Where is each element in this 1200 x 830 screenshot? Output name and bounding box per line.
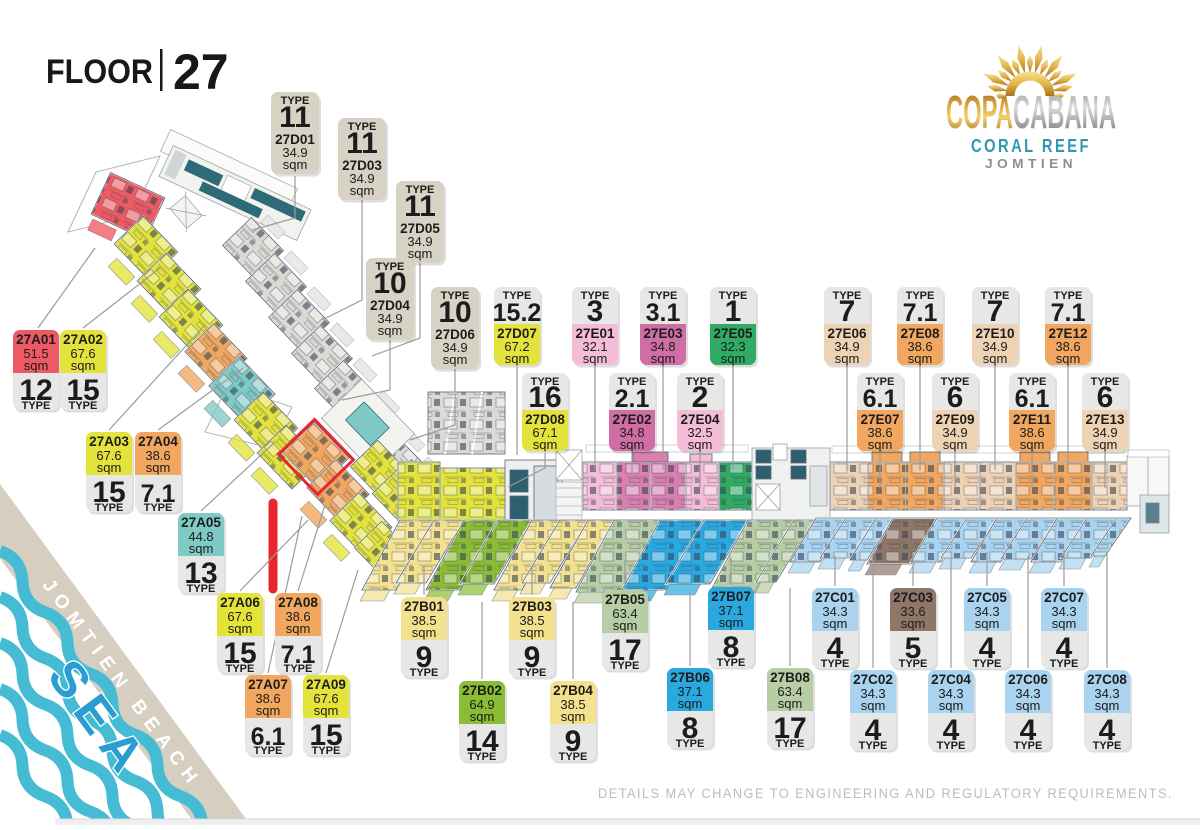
svg-text:sqm: sqm bbox=[146, 460, 171, 475]
svg-text:DETAILS MAY CHANGE TO ENGINEER: DETAILS MAY CHANGE TO ENGINEERING AND RE… bbox=[598, 786, 1173, 801]
svg-text:sqm: sqm bbox=[189, 541, 214, 556]
svg-text:JOMTIEN: JOMTIEN bbox=[985, 157, 1077, 171]
svg-text:TYPE: TYPE bbox=[22, 400, 51, 412]
svg-text:sqm: sqm bbox=[688, 437, 713, 452]
svg-text:3: 3 bbox=[587, 295, 604, 328]
svg-text:sqm: sqm bbox=[1016, 698, 1041, 713]
svg-text:CORAL REEF: CORAL REEF bbox=[971, 136, 1091, 156]
svg-text:27C04: 27C04 bbox=[931, 672, 971, 687]
svg-text:sqm: sqm bbox=[943, 437, 968, 452]
svg-text:1: 1 bbox=[725, 295, 742, 328]
svg-text:27B03: 27B03 bbox=[512, 599, 552, 614]
svg-text:sqm: sqm bbox=[613, 618, 638, 633]
svg-text:sqm: sqm bbox=[983, 351, 1008, 366]
svg-text:TYPE: TYPE bbox=[937, 740, 966, 752]
svg-text:27A05: 27A05 bbox=[181, 515, 221, 530]
svg-text:sqm: sqm bbox=[678, 696, 703, 711]
svg-text:15.2: 15.2 bbox=[493, 299, 542, 327]
svg-text:sqm: sqm bbox=[314, 703, 339, 718]
svg-text:11: 11 bbox=[279, 101, 311, 134]
svg-text:sqm: sqm bbox=[1095, 698, 1120, 713]
svg-text:sqm: sqm bbox=[975, 616, 1000, 631]
svg-text:27C03: 27C03 bbox=[893, 590, 933, 605]
svg-text:TYPE: TYPE bbox=[1093, 740, 1122, 752]
svg-text:TYPE: TYPE bbox=[611, 660, 640, 672]
svg-text:sqm: sqm bbox=[283, 157, 308, 172]
svg-text:sqm: sqm bbox=[350, 183, 375, 198]
svg-text:6: 6 bbox=[947, 381, 964, 414]
svg-text:sqm: sqm bbox=[861, 698, 886, 713]
svg-text:6.1: 6.1 bbox=[1015, 385, 1050, 413]
svg-text:10: 10 bbox=[373, 267, 406, 300]
svg-text:TYPE: TYPE bbox=[226, 663, 255, 675]
svg-text:COPACABANA: COPACABANA bbox=[946, 86, 1116, 138]
svg-text:TYPE: TYPE bbox=[518, 667, 547, 679]
svg-text:sqm: sqm bbox=[228, 621, 253, 636]
svg-text:TYPE: TYPE bbox=[776, 738, 805, 750]
svg-text:sqm: sqm bbox=[286, 621, 311, 636]
svg-text:TYPE: TYPE bbox=[254, 745, 283, 757]
svg-text:TYPE: TYPE bbox=[1050, 658, 1079, 670]
svg-text:sqm: sqm bbox=[1093, 437, 1118, 452]
svg-text:TYPE: TYPE bbox=[859, 740, 888, 752]
svg-text:2: 2 bbox=[692, 381, 709, 414]
svg-text:27B04: 27B04 bbox=[553, 683, 593, 698]
svg-text:sqm: sqm bbox=[561, 709, 586, 724]
svg-text:27A09: 27A09 bbox=[306, 677, 346, 692]
svg-text:TYPE: TYPE bbox=[144, 502, 173, 514]
svg-text:TYPE: TYPE bbox=[69, 400, 98, 412]
svg-text:sqm: sqm bbox=[412, 625, 437, 640]
svg-text:sqm: sqm bbox=[505, 351, 530, 366]
svg-text:TYPE: TYPE bbox=[284, 663, 313, 675]
svg-text:sqm: sqm bbox=[620, 437, 645, 452]
svg-text:11: 11 bbox=[346, 127, 378, 160]
svg-text:sqm: sqm bbox=[1020, 437, 1045, 452]
svg-text:7.1: 7.1 bbox=[903, 299, 938, 327]
svg-text:TYPE: TYPE bbox=[312, 745, 341, 757]
svg-text:TYPE: TYPE bbox=[676, 738, 705, 750]
svg-text:sqm: sqm bbox=[1056, 351, 1081, 366]
svg-text:sqm: sqm bbox=[97, 460, 122, 475]
svg-text:27B08: 27B08 bbox=[770, 670, 810, 685]
svg-text:27A07: 27A07 bbox=[248, 677, 288, 692]
svg-text:TYPE: TYPE bbox=[973, 658, 1002, 670]
svg-text:sqm: sqm bbox=[908, 351, 933, 366]
svg-text:sqm: sqm bbox=[721, 351, 746, 366]
svg-text:sqm: sqm bbox=[408, 246, 433, 261]
svg-text:11: 11 bbox=[404, 190, 436, 223]
svg-text:sqm: sqm bbox=[71, 358, 96, 373]
svg-text:sqm: sqm bbox=[470, 709, 495, 724]
svg-text:sqm: sqm bbox=[835, 351, 860, 366]
svg-text:27C01: 27C01 bbox=[815, 590, 855, 605]
svg-text:27A03: 27A03 bbox=[89, 434, 129, 449]
svg-text:27C08: 27C08 bbox=[1087, 672, 1127, 687]
svg-text:TYPE: TYPE bbox=[1014, 740, 1043, 752]
svg-text:TYPE: TYPE bbox=[95, 502, 124, 514]
svg-text:TYPE: TYPE bbox=[821, 658, 850, 670]
svg-text:27A08: 27A08 bbox=[278, 595, 318, 610]
svg-text:TYPE: TYPE bbox=[468, 751, 497, 763]
svg-text:sqm: sqm bbox=[24, 358, 49, 373]
svg-text:sqm: sqm bbox=[823, 616, 848, 631]
svg-text:27B06: 27B06 bbox=[670, 670, 710, 685]
svg-text:TYPE: TYPE bbox=[899, 658, 928, 670]
svg-text:6: 6 bbox=[1097, 381, 1114, 414]
svg-text:sqm: sqm bbox=[533, 437, 558, 452]
svg-text:sqm: sqm bbox=[256, 703, 281, 718]
svg-text:FLOOR: FLOOR bbox=[46, 53, 153, 91]
svg-text:27C06: 27C06 bbox=[1008, 672, 1048, 687]
svg-text:7: 7 bbox=[839, 295, 856, 328]
svg-text:sqm: sqm bbox=[443, 352, 468, 367]
svg-text:27C05: 27C05 bbox=[967, 590, 1007, 605]
svg-text:27A06: 27A06 bbox=[220, 595, 260, 610]
svg-text:7.1: 7.1 bbox=[1051, 299, 1086, 327]
svg-text:sqm: sqm bbox=[520, 625, 545, 640]
svg-text:27C07: 27C07 bbox=[1044, 590, 1084, 605]
svg-text:sqm: sqm bbox=[1052, 616, 1077, 631]
svg-text:7: 7 bbox=[987, 295, 1004, 328]
svg-text:6.1: 6.1 bbox=[863, 385, 898, 413]
svg-text:sqm: sqm bbox=[868, 437, 893, 452]
svg-text:27B01: 27B01 bbox=[404, 599, 444, 614]
svg-text:TYPE: TYPE bbox=[717, 657, 746, 669]
svg-text:3.1: 3.1 bbox=[646, 299, 681, 327]
svg-text:27A04: 27A04 bbox=[138, 434, 178, 449]
svg-text:10: 10 bbox=[438, 296, 471, 329]
svg-text:27A02: 27A02 bbox=[63, 332, 103, 347]
svg-text:27C02: 27C02 bbox=[853, 672, 893, 687]
svg-text:27B05: 27B05 bbox=[605, 592, 645, 607]
svg-text:16: 16 bbox=[528, 381, 561, 414]
svg-text:TYPE: TYPE bbox=[410, 667, 439, 679]
svg-text:TYPE: TYPE bbox=[187, 583, 216, 595]
svg-text:sqm: sqm bbox=[901, 616, 926, 631]
svg-text:sqm: sqm bbox=[778, 696, 803, 711]
svg-text:sqm: sqm bbox=[378, 323, 403, 338]
svg-text:sqm: sqm bbox=[719, 615, 744, 630]
svg-text:sqm: sqm bbox=[651, 351, 676, 366]
svg-text:sqm: sqm bbox=[583, 351, 608, 366]
svg-text:2.1: 2.1 bbox=[615, 385, 650, 413]
svg-text:27: 27 bbox=[173, 44, 229, 100]
svg-text:TYPE: TYPE bbox=[559, 751, 588, 763]
svg-text:27B02: 27B02 bbox=[462, 683, 502, 698]
svg-text:27A01: 27A01 bbox=[16, 332, 56, 347]
svg-text:sqm: sqm bbox=[939, 698, 964, 713]
svg-text:27B07: 27B07 bbox=[711, 589, 751, 604]
